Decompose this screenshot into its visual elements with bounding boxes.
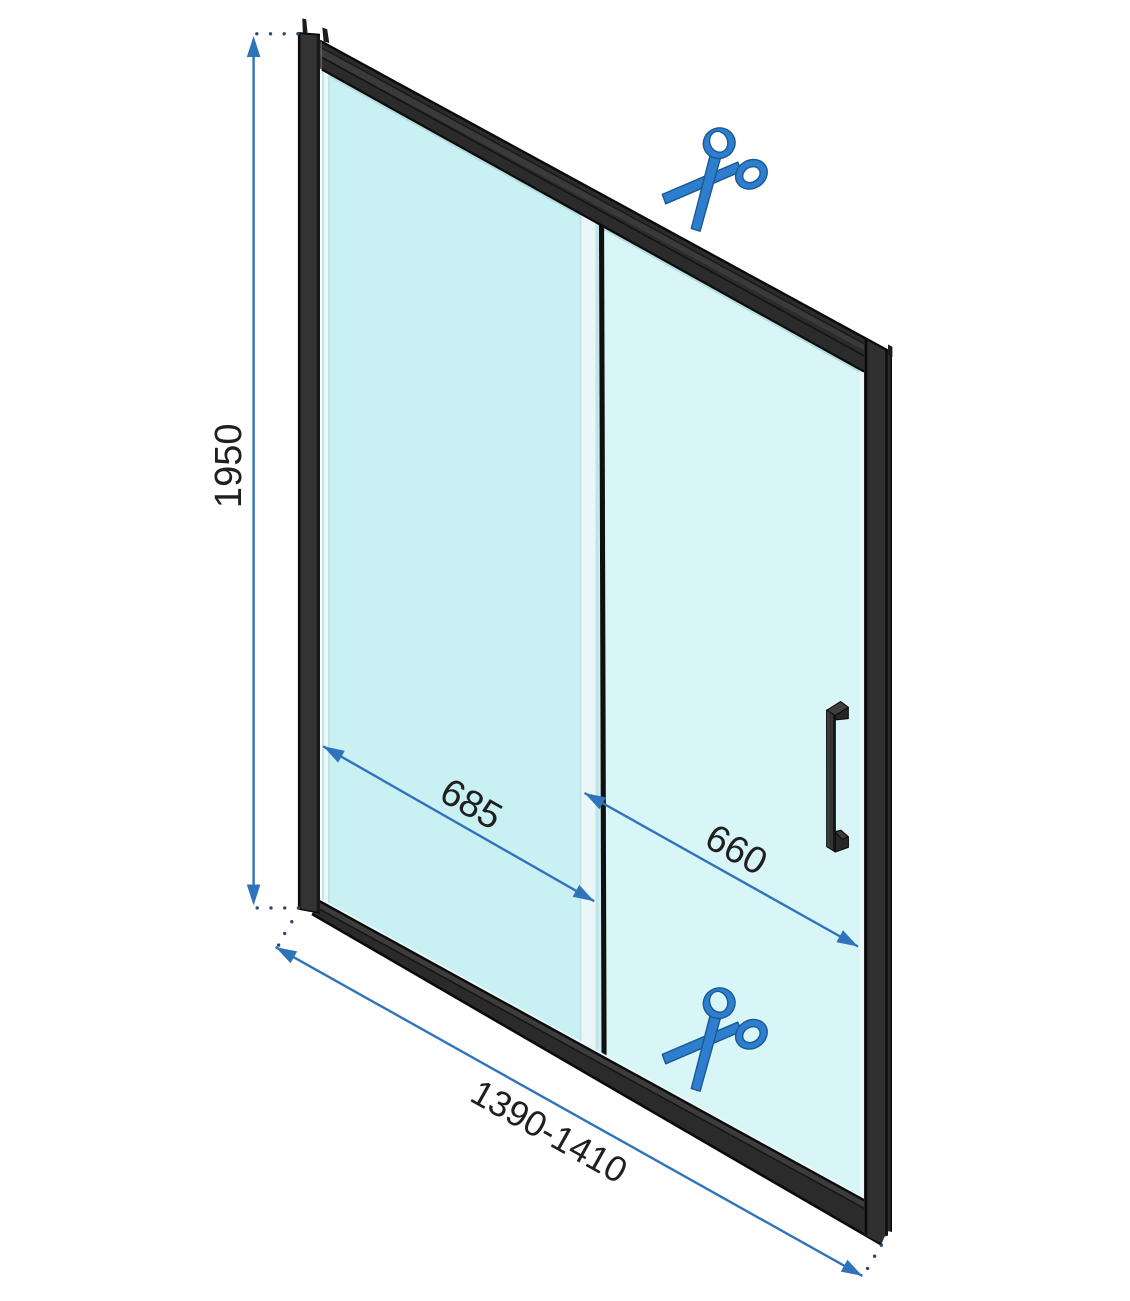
svg-text:1950: 1950 (208, 424, 250, 509)
